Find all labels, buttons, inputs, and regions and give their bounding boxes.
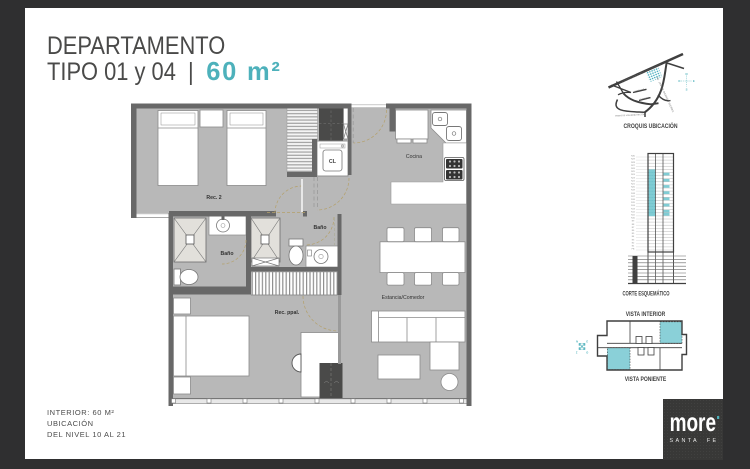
svg-text:N14: N14 — [631, 205, 636, 207]
svg-text:Rec. ppal.: Rec. ppal. — [275, 310, 300, 316]
svg-text:N17: N17 — [631, 196, 636, 198]
svg-text:N21: N21 — [631, 184, 636, 186]
svg-text:N2: N2 — [632, 242, 635, 244]
svg-text:E: E — [693, 79, 695, 83]
svg-text:N24: N24 — [631, 174, 636, 176]
svg-text:N22: N22 — [631, 180, 636, 182]
svg-text:Cocina: Cocina — [406, 154, 422, 160]
svg-text:N19: N19 — [631, 190, 636, 192]
svg-text:Z: Z — [576, 350, 578, 354]
svg-text:N29: N29 — [631, 159, 636, 161]
svg-text:Baño: Baño — [314, 225, 327, 231]
svg-text:S: S — [686, 87, 688, 91]
svg-text:N: N — [576, 340, 578, 344]
svg-text:N9: N9 — [632, 221, 635, 223]
svg-text:N6: N6 — [632, 230, 635, 232]
svg-text:N4: N4 — [632, 236, 635, 238]
svg-text:VISTA PONIENTE: VISTA PONIENTE — [625, 376, 667, 383]
svg-text:N16: N16 — [631, 199, 636, 201]
svg-text:Rec. 2: Rec. 2 — [206, 195, 221, 201]
svg-text:O: O — [678, 79, 681, 83]
svg-text:CORTE ESQUEMÁTICO: CORTE ESQUEMÁTICO — [623, 289, 670, 298]
svg-text:PASEO DE LOS ARQUITECTOS: PASEO DE LOS ARQUITECTOS — [615, 113, 645, 118]
svg-text:N8: N8 — [632, 224, 635, 226]
svg-text:N1: N1 — [632, 246, 635, 248]
svg-text:VISTA INTERIOR: VISTA INTERIOR — [626, 311, 666, 318]
svg-text:Baño: Baño — [221, 251, 234, 257]
svg-text:Estancia/Comedor: Estancia/Comedor — [382, 295, 425, 301]
svg-text:N13: N13 — [631, 208, 636, 210]
svg-text:N15: N15 — [631, 202, 636, 204]
svg-text:N5: N5 — [632, 233, 635, 235]
svg-text:N23: N23 — [631, 177, 636, 179]
svg-text:N: N — [685, 72, 687, 76]
svg-text:QUIROGA: QUIROGA — [639, 96, 650, 101]
svg-text:E: E — [586, 340, 588, 344]
svg-text:N7: N7 — [632, 227, 635, 229]
svg-text:CROQUIS UBICACIÓN: CROQUIS UBICACIÓN — [624, 121, 678, 130]
svg-text:O: O — [586, 350, 588, 354]
svg-text:N27: N27 — [631, 165, 636, 167]
svg-text:N18: N18 — [631, 193, 636, 195]
svg-text:PB: PB — [632, 249, 635, 251]
svg-text:N30: N30 — [631, 156, 636, 158]
svg-text:N11: N11 — [631, 215, 635, 217]
svg-text:VASCO DE: VASCO DE — [634, 88, 645, 93]
svg-text:N10: N10 — [631, 218, 636, 220]
svg-text:CL: CL — [329, 159, 337, 165]
svg-text:N28: N28 — [631, 162, 636, 164]
svg-text:N25: N25 — [631, 171, 636, 173]
svg-text:N3: N3 — [632, 239, 635, 241]
svg-text:N26: N26 — [631, 168, 636, 170]
svg-text:N20: N20 — [631, 187, 636, 189]
svg-text:N12: N12 — [631, 211, 636, 213]
